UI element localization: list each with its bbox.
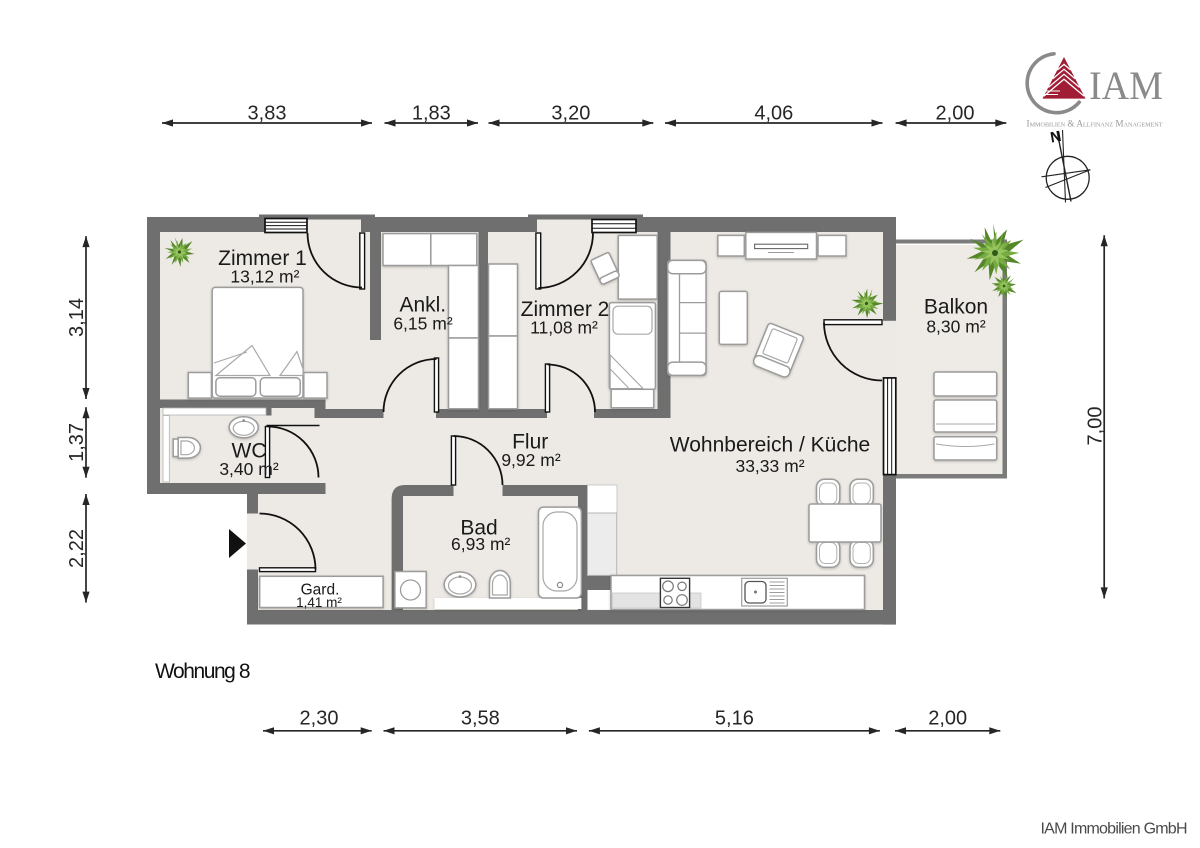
svg-text:3,14: 3,14	[66, 298, 88, 337]
svg-text:Balkon: Balkon	[924, 296, 988, 319]
svg-text:2,30: 2,30	[300, 708, 339, 730]
svg-text:4,06: 4,06	[754, 103, 793, 125]
svg-text:1,37: 1,37	[66, 423, 88, 462]
svg-text:1,83: 1,83	[412, 103, 451, 125]
svg-text:8,30 m²: 8,30 m²	[926, 317, 985, 337]
svg-text:7,00: 7,00	[1085, 407, 1107, 446]
svg-text:2,22: 2,22	[66, 529, 88, 568]
svg-text:3,83: 3,83	[248, 103, 287, 125]
svg-text:2,00: 2,00	[936, 103, 975, 125]
svg-text:13,12 m²: 13,12 m²	[230, 267, 299, 287]
svg-text:IAM Immobilien GmbH: IAM Immobilien GmbH	[1041, 821, 1188, 838]
svg-text:33,33 m²: 33,33 m²	[735, 456, 804, 476]
svg-text:Immobilien & Allfinanz Managem: Immobilien & Allfinanz Management	[1027, 119, 1163, 129]
svg-text:11,08 m²: 11,08 m²	[530, 318, 598, 338]
svg-text:9,92 m²: 9,92 m²	[501, 450, 560, 470]
svg-text:1,41 m²: 1,41 m²	[296, 595, 342, 610]
svg-text:5,16: 5,16	[715, 708, 754, 730]
svg-text:6,15 m²: 6,15 m²	[393, 314, 452, 334]
svg-text:3,40 m²: 3,40 m²	[219, 459, 278, 479]
svg-text:6,93 m²: 6,93 m²	[451, 534, 510, 554]
svg-text:3,20: 3,20	[551, 103, 590, 125]
svg-text:Wohnung 8: Wohnung 8	[155, 660, 251, 683]
svg-text:IAM: IAM	[1089, 63, 1163, 108]
svg-text:3,58: 3,58	[461, 708, 500, 730]
svg-text:2,00: 2,00	[928, 708, 967, 730]
svg-text:Wohnbereich / Küche: Wohnbereich / Küche	[670, 434, 870, 457]
